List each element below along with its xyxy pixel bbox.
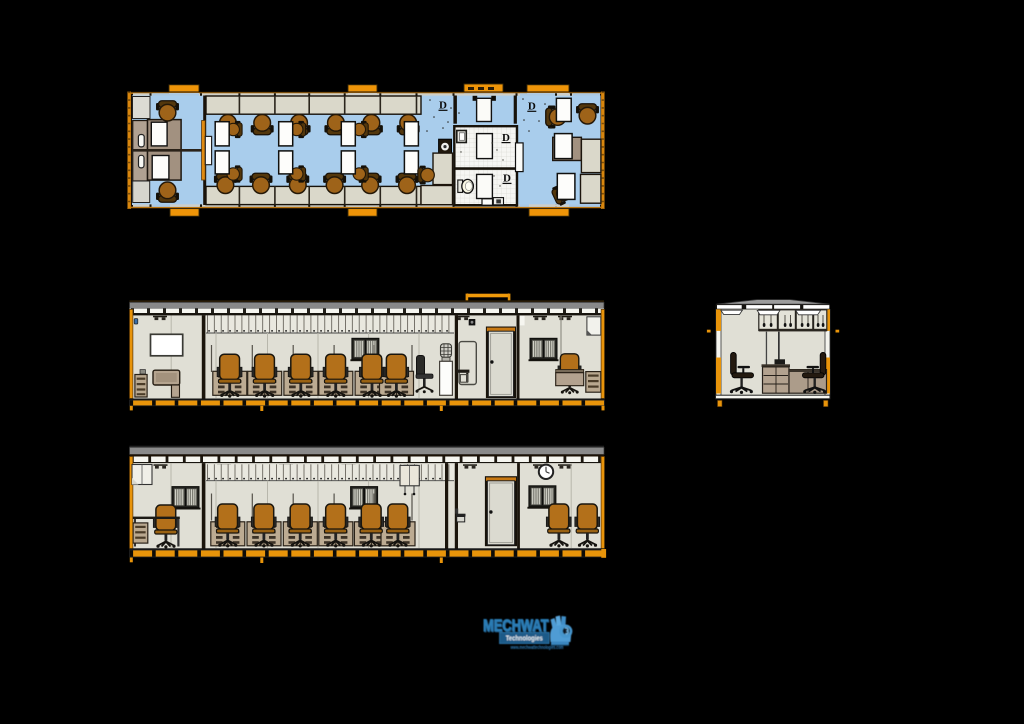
svg-text:www.mechwattechnologies.com: www.mechwattechnologies.com [510,645,564,651]
svg-text:Technologies: Technologies [506,636,543,643]
svg-text:D: D [528,101,536,113]
svg-text:D: D [439,100,447,112]
